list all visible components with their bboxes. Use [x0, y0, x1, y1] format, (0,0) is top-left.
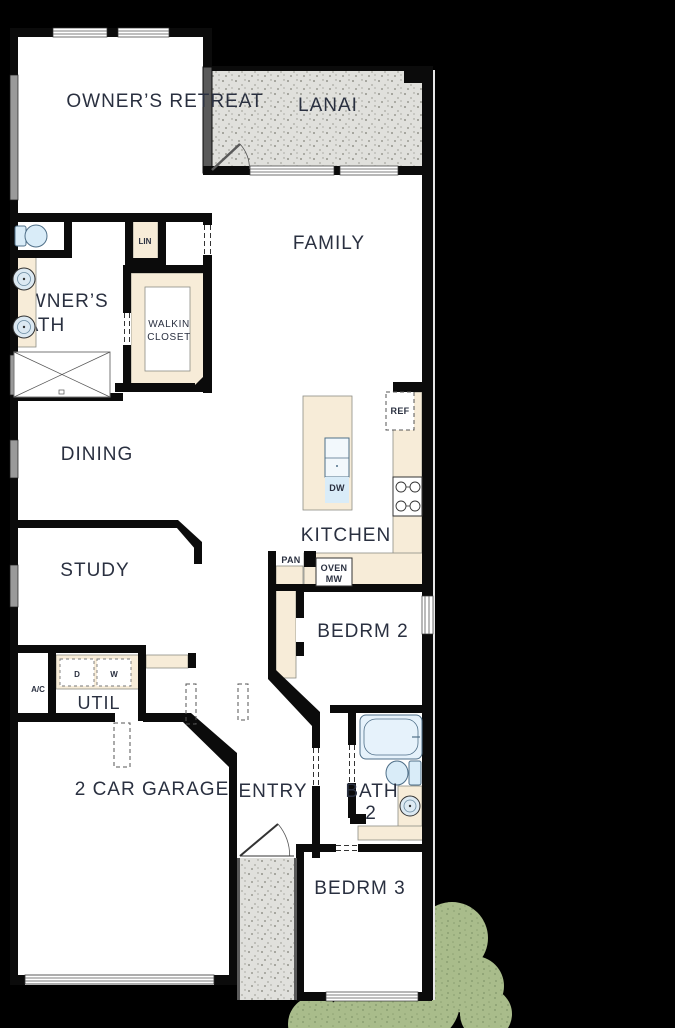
bedroom3-closet-shelf	[358, 826, 424, 840]
room-label-walkin-2: CLOSET	[147, 332, 191, 343]
label-oven: OVEN	[321, 563, 348, 573]
label-air-conditioner: A/C	[31, 685, 45, 694]
room-label-bath2-2: 2	[365, 803, 377, 824]
porch-floor	[240, 858, 297, 1000]
owners-shower-fixture	[14, 352, 110, 397]
wall-bedroom2-bottom	[330, 705, 424, 713]
wall-toilet-nook-bottom	[14, 250, 68, 258]
wall-bedroom2-left-upper	[296, 584, 304, 618]
room-label-dining: DINING	[61, 444, 134, 465]
lanai-floor	[212, 70, 432, 170]
label-refrigerator: REF	[391, 406, 410, 416]
label-washer: W	[110, 670, 118, 679]
bath2-sink-fixture	[400, 796, 420, 816]
wall-study-top	[10, 520, 178, 528]
wall-lanai-top	[212, 66, 432, 71]
wall-utility-right	[138, 645, 146, 721]
wall-kitchen-ref-stub	[393, 382, 424, 392]
bedroom2-window	[422, 596, 433, 634]
wall-garage-bottom-left	[10, 975, 25, 985]
porch-right-edge	[294, 858, 297, 1000]
room-label-entry: ENTRY	[238, 781, 307, 802]
range-fixture	[393, 477, 422, 516]
wall-walkin-top	[123, 265, 212, 273]
wall-bedroom3-bottom-right	[418, 992, 432, 1001]
label-pantry: PAN	[281, 555, 300, 565]
wall-utility-left	[48, 645, 56, 721]
wall-hall-right	[268, 551, 276, 678]
floor-plan: OWNER’S BATH	[0, 0, 675, 1028]
bath2-tub-fixture	[360, 715, 422, 759]
wall-garage-top-right	[143, 713, 185, 722]
room-label-bedroom3: BEDRM 3	[314, 878, 405, 899]
family-lanai-window-2	[340, 166, 398, 175]
room-label-bath2-1: BATH	[345, 781, 398, 802]
label-microwave: MW	[326, 574, 343, 584]
family-lanai-window-1	[250, 166, 334, 175]
wall-study-right	[194, 542, 202, 564]
floor-plan-page: OWNER’S BATH	[0, 0, 675, 1028]
label-dryer: D	[74, 670, 80, 679]
wall-retreat-lanai-screen	[203, 67, 212, 173]
room-label-linen: LIN	[139, 237, 152, 246]
wall-walkin-bottom	[115, 383, 195, 392]
room-label-walkin-1: WALKIN	[148, 319, 190, 330]
garage-overhead-door	[25, 975, 214, 984]
wall-garage-bottom-right	[214, 975, 237, 985]
wall-study-bottom	[10, 645, 140, 653]
wall-retreat-right-upper	[203, 28, 212, 73]
wall-garage-top-left	[10, 713, 115, 722]
dishwasher-fixture	[325, 438, 349, 503]
room-label-study: STUDY	[60, 560, 129, 581]
wall-top-exterior	[10, 28, 211, 37]
bedroom2-closet-shelf	[276, 590, 296, 678]
wall-bath2-bottom-stub	[350, 814, 366, 824]
wall-pantry-right-stub	[304, 551, 316, 567]
room-label-family: FAMILY	[293, 233, 365, 254]
dining-left-window	[10, 440, 18, 478]
hall-closet-shelf	[146, 655, 188, 668]
room-label-utility: UTIL	[77, 693, 120, 713]
wall-bedroom3-bottom-left	[296, 992, 326, 1001]
bedroom3-window	[326, 992, 418, 1001]
wall-bedroom3-top	[296, 844, 424, 852]
wall-right-exterior	[422, 66, 433, 1000]
retreat-left-window	[10, 75, 18, 200]
wall-garage-right	[229, 753, 237, 975]
wall-bedroom3-left	[296, 846, 304, 1001]
right-wall-trim	[433, 70, 435, 1000]
owners-toilet-fixture	[15, 225, 47, 247]
wall-hall-closet	[188, 653, 196, 668]
wall-retreat-bottom	[10, 213, 212, 222]
retreat-window-1	[53, 28, 107, 37]
wall-bedroom2-left-lower	[296, 642, 304, 656]
retreat-window-2	[118, 28, 169, 37]
bedroom2-closet-opening	[296, 618, 304, 642]
room-label-bedroom2: BEDRM 2	[317, 621, 408, 642]
porch-left-edge	[237, 858, 240, 1000]
wall-linen-bottom	[125, 258, 166, 266]
wall-walkin-left-upper	[123, 265, 131, 313]
label-dishwasher: DW	[329, 483, 345, 493]
study-left-window	[10, 565, 18, 607]
room-label-lanai: LANAI	[298, 95, 358, 116]
pantry-shelf	[276, 566, 303, 585]
wall-entry-right	[312, 722, 320, 858]
room-label-kitchen: KITCHEN	[301, 525, 391, 546]
room-label-owners-retreat: OWNER’S RETREAT	[66, 91, 263, 112]
room-label-garage: 2 CAR GARAGE	[75, 779, 230, 800]
wall-bath2-left-upper	[348, 705, 356, 745]
wall-walkin-left-lower	[123, 345, 131, 385]
